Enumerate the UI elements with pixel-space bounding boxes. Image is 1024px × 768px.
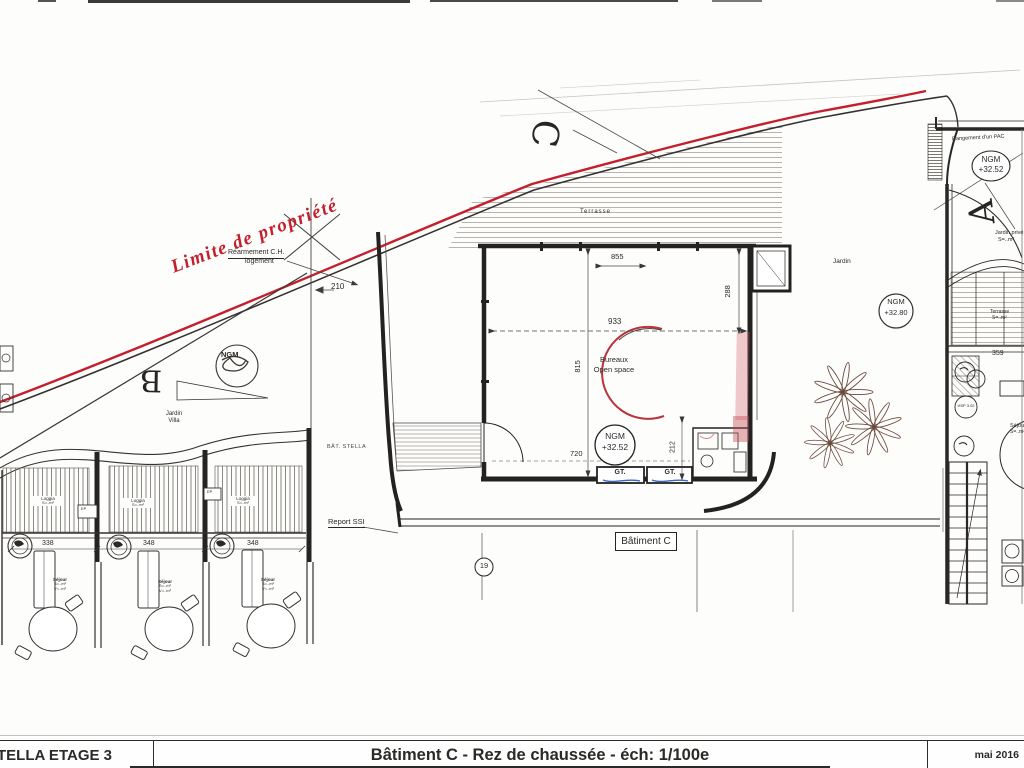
pencil-construction-lines	[480, 70, 1020, 116]
property-limit-line	[0, 91, 958, 458]
building-c	[378, 232, 940, 612]
jardin-prive-label-2: S=..m²	[998, 237, 1014, 243]
jardin-villa-label-2: Villa	[158, 418, 190, 425]
ep-label: EP	[207, 490, 212, 495]
jardin-area	[799, 294, 913, 475]
dim-359: 359	[992, 350, 1004, 358]
ngm-open-space-name: NGM	[600, 431, 630, 441]
sejour-volume: V=..m³	[150, 589, 180, 594]
gt-label-1: GT.	[600, 469, 640, 477]
ngm-villa-b-label: NGM	[221, 351, 239, 360]
ngm-entry-name: NGM	[976, 155, 1006, 164]
dim-210: 210	[331, 282, 344, 291]
dim-720: 720	[570, 450, 583, 459]
ngm-open-space-value: +32.52	[598, 442, 632, 452]
sejour-a-label-2: S=..m²	[1010, 430, 1024, 436]
red-pen-streak	[733, 416, 749, 442]
section-letter-b: B	[140, 362, 163, 398]
dim-933: 933	[608, 317, 621, 326]
terrasse-a-label-2: S=..m²	[992, 316, 1007, 322]
dim-348a: 348	[143, 540, 155, 548]
gt-label-2: GT.	[650, 469, 690, 477]
sejour-volume: V=..m³	[45, 587, 75, 592]
dim-348b: 348	[247, 540, 259, 548]
title-block-date-cell: mai 2016	[927, 741, 1024, 768]
batiment-c-title-box: Bâtiment C	[615, 532, 677, 551]
jardin-label: Jardin	[833, 258, 851, 266]
building-a	[928, 117, 1024, 604]
rearmement-label-2: logement	[245, 258, 274, 266]
scanned-floor-plan: Limite de propriété Réarmement C.H. loge…	[0, 0, 1024, 768]
title-block-title-cell: Bâtiment C - Rez de chaussée - éch: 1/10…	[153, 741, 927, 768]
dim-855: 855	[611, 253, 624, 262]
ngm-jardin-name: NGM	[881, 298, 911, 307]
jardin-prive-label: Jardin privé	[995, 230, 1023, 236]
sejour-volume: V=..m³	[253, 587, 283, 592]
project-name: TELLA ETAGE 3	[0, 747, 112, 764]
bat-annotation-label: BÂT. STELLA	[327, 444, 366, 450]
loggia-area: S=..m²	[228, 501, 258, 506]
drawing-title: Bâtiment C - Rez de chaussée - éch: 1/10…	[371, 746, 709, 765]
title-block: TELLA ETAGE 3 Bâtiment C - Rez de chauss…	[0, 740, 1024, 768]
drawing-date: mai 2016	[975, 749, 1019, 761]
hsp-marker-label: HSP 3.02	[951, 404, 981, 409]
report-ssi-label: Report SSI	[328, 518, 365, 528]
loggia-area: S=..m²	[33, 501, 63, 506]
titleblock-smudge	[0, 735, 1024, 736]
bureaux-label-2: Open space	[590, 366, 638, 375]
section-letter-c: C	[521, 117, 567, 150]
dim-288: 288	[724, 285, 733, 298]
red-pen-streak	[735, 332, 750, 420]
bureaux-label: Bureaux	[590, 356, 638, 365]
plant-drawing	[799, 362, 911, 475]
ep-label: EP	[81, 507, 86, 512]
section-letter-a: A	[961, 197, 1004, 226]
dim-815: 815	[574, 360, 583, 373]
dim-338: 338	[42, 540, 54, 548]
title-block-project-cell: TELLA ETAGE 3	[0, 741, 154, 768]
detail-ref-label: 19	[475, 562, 493, 571]
survey-cross	[284, 198, 340, 458]
ngm-jardin-value: +32.80	[879, 309, 913, 318]
ngm-entry-value: +32.52	[974, 165, 1008, 174]
loggia-area: S=..m²	[123, 503, 153, 508]
terrasse-label: Terrasse	[580, 209, 611, 216]
dim-212: 212	[670, 441, 678, 453]
stairs	[943, 462, 987, 604]
